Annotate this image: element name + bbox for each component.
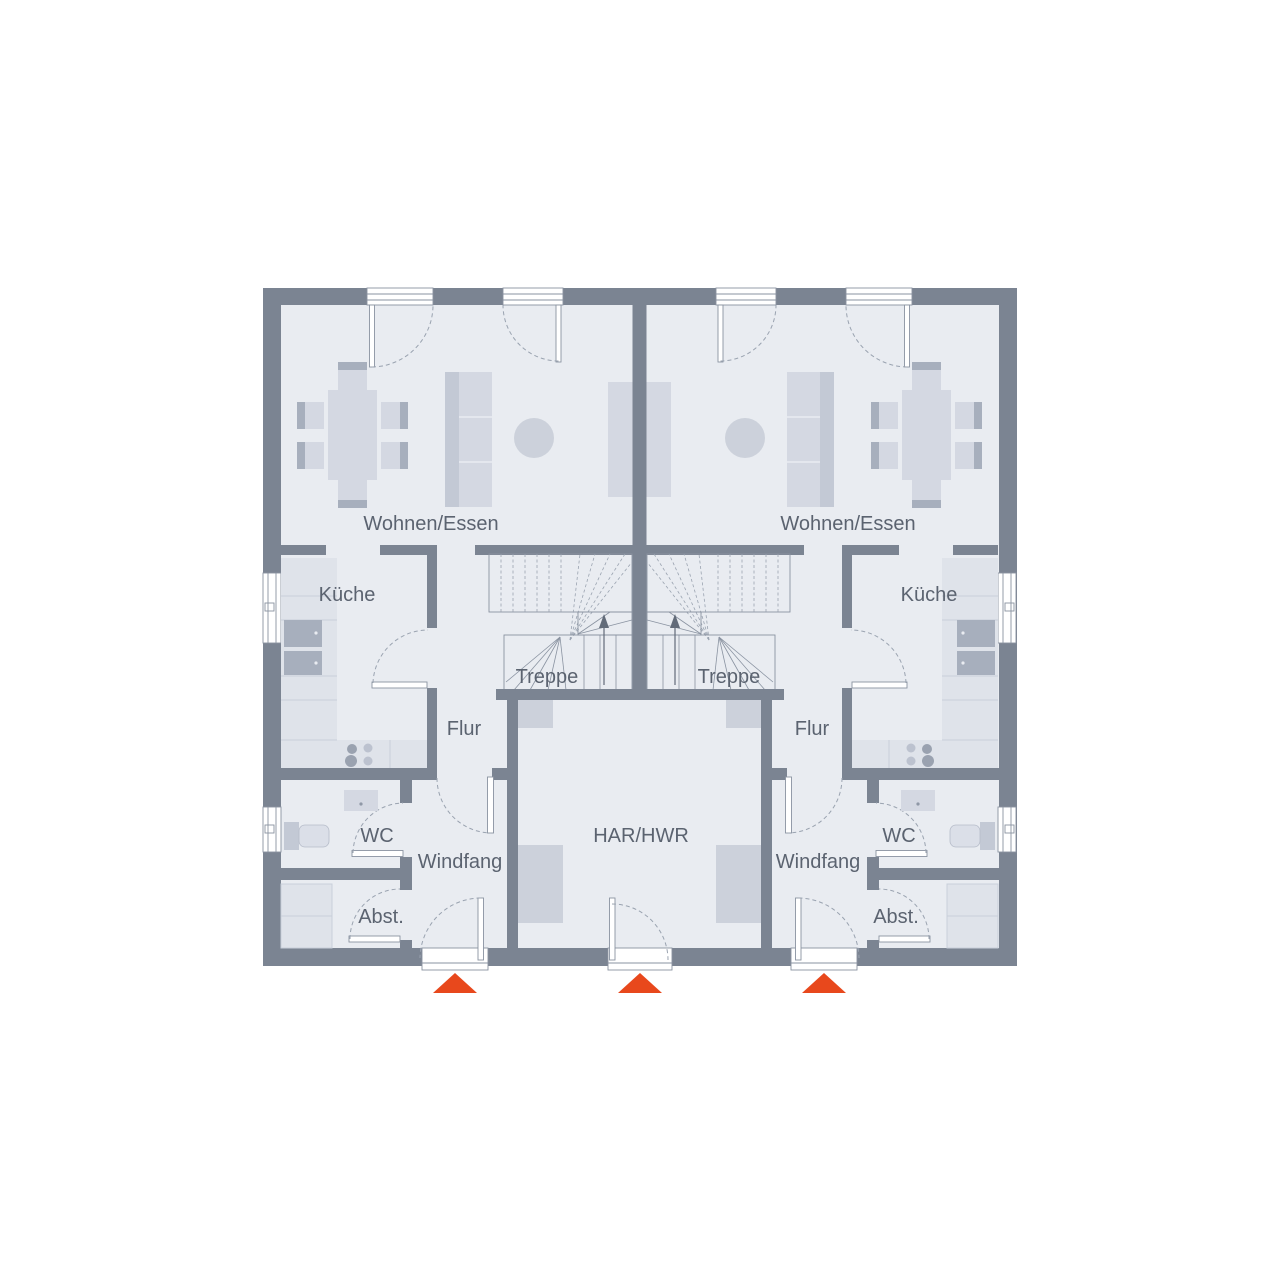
stove-burner xyxy=(364,757,373,766)
room-label-flur-left: Flur xyxy=(447,718,482,740)
room-label-kueche-left: Küche xyxy=(319,584,376,606)
room-label-wc-left: WC xyxy=(360,825,393,847)
room-label-wohnen-essen-left: Wohnen/Essen xyxy=(363,513,498,535)
wall-stairs-har xyxy=(496,689,784,700)
wall-windfang-wc-b xyxy=(400,857,412,890)
entrance-triangle xyxy=(433,973,477,993)
floor-plan-page: Wohnen/Essen Küche Treppe Flur WC Windfa… xyxy=(0,0,1280,1280)
wall-kitchen-flur-top xyxy=(427,545,437,628)
room-label-wc-right: WC xyxy=(882,825,915,847)
entrance-triangle-center xyxy=(618,973,662,993)
wall-living-kitchen-a xyxy=(281,545,326,555)
sofa xyxy=(445,372,492,507)
party-wall xyxy=(633,305,647,689)
room-label-abst-left: Abst. xyxy=(358,906,404,928)
wc-window xyxy=(263,807,281,852)
storage-shelves xyxy=(281,884,332,948)
room-label-treppe-right: Treppe xyxy=(698,666,761,688)
stove-burner xyxy=(347,744,357,754)
wall-living-stairs xyxy=(475,545,633,555)
wall-windfang-wc-a xyxy=(400,768,412,803)
stove-burner xyxy=(345,755,357,767)
room-label-har-hwr: HAR/HWR xyxy=(593,825,689,847)
room-label-treppe-left: Treppe xyxy=(516,666,579,688)
coffee-table xyxy=(514,418,554,458)
har-cabinet-top xyxy=(518,700,553,728)
wall-windfang-abst-stub xyxy=(400,940,412,948)
wc-sink xyxy=(344,790,378,811)
sideboard xyxy=(608,382,633,497)
wall-kitchen-flur-bottom xyxy=(427,688,437,768)
floor-plan-svg: Wohnen/Essen Küche Treppe Flur WC Windfa… xyxy=(0,0,1280,1280)
room-label-wohnen-essen-right: Wohnen/Essen xyxy=(780,513,915,535)
wall-wc-abst xyxy=(263,868,412,880)
room-label-kueche-right: Küche xyxy=(901,584,958,606)
toilet xyxy=(284,822,329,850)
room-label-flur-right: Flur xyxy=(795,718,830,740)
wall-har-side xyxy=(507,700,518,948)
har-cabinet-bottom xyxy=(518,845,563,923)
stove-burner xyxy=(364,744,373,753)
kitchen-window xyxy=(263,573,281,643)
wall-stub-flur xyxy=(492,768,507,780)
room-label-windfang-left: Windfang xyxy=(418,851,503,873)
room-label-windfang-right: Windfang xyxy=(776,851,861,873)
room-label-abst-right: Abst. xyxy=(873,906,919,928)
